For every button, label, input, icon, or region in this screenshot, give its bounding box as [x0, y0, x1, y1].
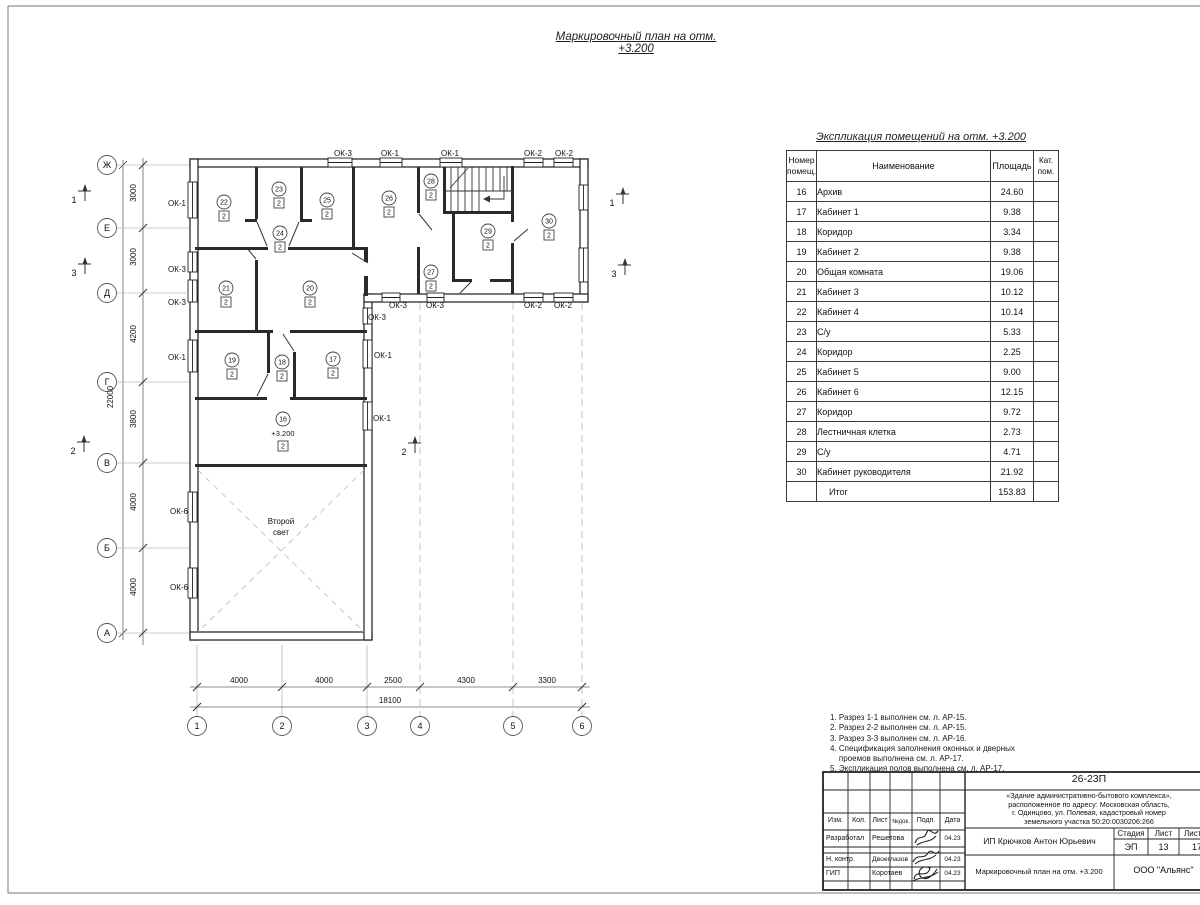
date-control: 04.23: [940, 856, 965, 865]
window-label: ОК-2: [555, 149, 574, 158]
table-row: 27Коридор9.72: [787, 402, 1059, 422]
table-row: 28Лестничная клетка2.73: [787, 422, 1059, 442]
note-line: проемов выполнена см. л. АР-17.: [830, 754, 1015, 764]
table-cell: 153.83: [991, 482, 1034, 502]
svg-text:2: 2: [547, 233, 551, 240]
table-row: 21Кабинет 310.12: [787, 282, 1059, 302]
col-data: Дата: [940, 817, 965, 826]
svg-text:2: 2: [429, 284, 433, 291]
sheets-value: 17: [1180, 843, 1200, 852]
svg-text:2: 2: [281, 444, 285, 451]
table-cell: 24: [787, 342, 817, 362]
room-schedule-table: Номер помещ. Наименование Площадь Кат. п…: [786, 150, 1059, 502]
schedule-title: Экспликация помещений на отм. +3.200: [784, 131, 1058, 143]
svg-text:2: 2: [486, 243, 490, 250]
window-label: ОК-2: [524, 149, 543, 158]
svg-text:2: 2: [224, 300, 228, 307]
svg-text:2: 2: [308, 300, 312, 307]
second-light-label: Второй: [268, 517, 294, 526]
table-cell: 2.73: [991, 422, 1034, 442]
dimension-label: 4000: [129, 493, 138, 511]
room-label: 262: [382, 191, 396, 217]
sheets-label: Листов: [1180, 830, 1200, 839]
stage-value: ЭП: [1114, 843, 1148, 852]
table-row: 18Коридор3.34: [787, 222, 1059, 242]
svg-text:2: 2: [387, 210, 391, 217]
level-mark: +3.200: [271, 429, 294, 438]
note-line: 1. Разрез 1-1 выполнен см. л. АР-15.: [830, 713, 1015, 723]
window-label: ОК-1: [374, 351, 393, 360]
table-cell: 18: [787, 222, 817, 242]
svg-text:2: 2: [279, 721, 284, 731]
section-marker: 2: [70, 435, 90, 456]
svg-text:Б: Б: [104, 543, 110, 553]
table-cell: Итог: [817, 482, 991, 502]
table-cell: [1034, 482, 1059, 502]
svg-text:22: 22: [220, 200, 228, 207]
svg-text:1: 1: [194, 721, 199, 731]
name-developer: Решетова: [872, 835, 912, 844]
svg-text:2: 2: [70, 446, 75, 456]
table-cell: [1034, 362, 1059, 382]
table-row: 17Кабинет 19.38: [787, 202, 1059, 222]
svg-text:29: 29: [484, 229, 492, 236]
dimension-label: 4300: [457, 676, 475, 685]
schedule-header-row: Номер помещ. Наименование Площадь Кат. п…: [787, 151, 1059, 182]
svg-text:19: 19: [228, 358, 236, 365]
table-cell: 27: [787, 402, 817, 422]
note-line: 2. Разрез 2-2 выполнен см. л. АР-15.: [830, 723, 1015, 733]
room-label: 192: [225, 353, 239, 379]
table-cell: 23: [787, 322, 817, 342]
svg-text:26: 26: [385, 196, 393, 203]
col-ndoc: №док.: [890, 818, 912, 827]
svg-text:5: 5: [510, 721, 515, 731]
table-cell: [787, 482, 817, 502]
window-symbols: [188, 158, 588, 598]
table-row: 22Кабинет 410.14: [787, 302, 1059, 322]
dimension-label: 4200: [129, 325, 138, 343]
svg-text:2: 2: [277, 201, 281, 208]
room-label: 16+3.2002: [271, 412, 294, 451]
axis-column-markers: 123456: [188, 683, 592, 736]
svg-text:21: 21: [222, 286, 230, 293]
dimension-labels: 3000300042003800400040004000400025004300…: [106, 184, 556, 705]
table-cell: 19.06: [991, 262, 1034, 282]
dimension-label: 3800: [129, 410, 138, 428]
svg-text:16: 16: [279, 417, 287, 424]
section-marker: 1: [609, 187, 629, 208]
table-cell: [1034, 282, 1059, 302]
table-cell: Коридор: [817, 342, 991, 362]
svg-text:23: 23: [275, 187, 283, 194]
table-cell: Кабинет 4: [817, 302, 991, 322]
room-label: 252: [320, 193, 334, 219]
table-row: 23С/у5.33: [787, 322, 1059, 342]
stage-label: Стадия: [1114, 830, 1148, 839]
table-row: 26Кабинет 612.15: [787, 382, 1059, 402]
plan-title: Маркировочный план на отм. +3.200: [540, 31, 732, 55]
table-row: Итог153.83: [787, 482, 1059, 502]
drawing-name: Маркировочный план на отм. +3.200: [966, 868, 1112, 877]
dimension-label: 3000: [129, 184, 138, 202]
table-cell: 25: [787, 362, 817, 382]
svg-text:2: 2: [280, 374, 284, 381]
grid-lines: [197, 303, 582, 716]
dimension-label: 4000: [129, 578, 138, 596]
svg-text:2: 2: [429, 193, 433, 200]
table-cell: Кабинет руководителя: [817, 462, 991, 482]
table-cell: 10.14: [991, 302, 1034, 322]
table-cell: [1034, 182, 1059, 202]
table-cell: 21: [787, 282, 817, 302]
role-developer: Разработал: [826, 835, 871, 844]
svg-text:3: 3: [611, 269, 616, 279]
table-cell: Кабинет 5: [817, 362, 991, 382]
window-label: ОК-1: [441, 149, 460, 158]
table-cell: 19: [787, 242, 817, 262]
table-cell: 26: [787, 382, 817, 402]
svg-text:30: 30: [545, 219, 553, 226]
room-label: 272: [424, 265, 438, 291]
svg-text:6: 6: [579, 721, 584, 731]
col-header-category: Кат. пом.: [1034, 151, 1059, 182]
table-cell: Архив: [817, 182, 991, 202]
sheet-value: 13: [1148, 843, 1179, 852]
table-cell: 9.38: [991, 202, 1034, 222]
col-header-number: Номер помещ.: [787, 151, 817, 182]
table-row: 24Коридор2.25: [787, 342, 1059, 362]
table-cell: Кабинет 6: [817, 382, 991, 402]
svg-text:2: 2: [278, 245, 282, 252]
window-label: ОК-3: [426, 301, 445, 310]
table-cell: [1034, 382, 1059, 402]
table-cell: 17: [787, 202, 817, 222]
table-cell: [1034, 222, 1059, 242]
table-cell: 21.92: [991, 462, 1034, 482]
company-name: ООО "Альянс": [1114, 866, 1200, 875]
table-cell: 20: [787, 262, 817, 282]
table-cell: 4.71: [991, 442, 1034, 462]
room-label: 302: [542, 214, 556, 240]
table-cell: 9.72: [991, 402, 1034, 422]
room-label: 202: [303, 281, 317, 307]
table-row: 19Кабинет 29.38: [787, 242, 1059, 262]
table-cell: Коридор: [817, 402, 991, 422]
svg-text:А: А: [104, 628, 110, 638]
table-cell: 9.00: [991, 362, 1034, 382]
room-label: 182: [275, 355, 289, 381]
date-gip: 04.23: [940, 870, 965, 879]
svg-text:В: В: [104, 458, 110, 468]
svg-text:2: 2: [331, 371, 335, 378]
date-developer: 04.23: [940, 835, 965, 844]
room-label: 212: [219, 281, 233, 307]
name-gip: Коротаев: [872, 870, 912, 879]
window-label: ОК-1: [168, 199, 187, 208]
drawing-sheet: { "sheet": { "plan_title": "Маркировочны…: [0, 0, 1200, 900]
window-label: ОК-1: [373, 414, 392, 423]
table-row: 25Кабинет 59.00: [787, 362, 1059, 382]
dimension-label: 4000: [315, 676, 333, 685]
room-label: 282: [424, 174, 438, 200]
room-labels: 2222322422522622822923022722122021921821…: [217, 174, 556, 451]
misc-labels: Второйсвет: [268, 517, 294, 537]
svg-text:2: 2: [401, 447, 406, 457]
window-label: ОК-3: [334, 149, 353, 158]
table-cell: 24.60: [991, 182, 1034, 202]
table-cell: 3.34: [991, 222, 1034, 242]
window-label: ОК-2: [524, 301, 543, 310]
second-light-label: свет: [273, 528, 289, 537]
staircase: [446, 167, 511, 211]
note-line: 5. Экспликация полов выполнена см. л. АР…: [830, 764, 1015, 774]
table-cell: Кабинет 3: [817, 282, 991, 302]
table-cell: С/у: [817, 442, 991, 462]
signature-scribbles: [913, 830, 939, 881]
room-label: 232: [272, 182, 286, 208]
svg-text:27: 27: [427, 270, 435, 277]
table-cell: 2.25: [991, 342, 1034, 362]
table-row: 29С/у4.71: [787, 442, 1059, 462]
window-label: ОК-6: [170, 507, 189, 516]
svg-text:2: 2: [230, 372, 234, 379]
table-cell: 16: [787, 182, 817, 202]
table-cell: 28: [787, 422, 817, 442]
role-gip: ГИП: [826, 870, 871, 879]
table-cell: Кабинет 1: [817, 202, 991, 222]
svg-text:1: 1: [609, 198, 614, 208]
table-cell: [1034, 442, 1059, 462]
dimension-label: 4000: [230, 676, 248, 685]
svg-text:2: 2: [222, 214, 226, 221]
window-label: ОК-6: [170, 583, 189, 592]
table-cell: [1034, 302, 1059, 322]
room-label: 172: [326, 352, 340, 378]
table-cell: Кабинет 2: [817, 242, 991, 262]
table-cell: [1034, 202, 1059, 222]
room-label: 292: [481, 224, 495, 250]
section-marker: 1: [71, 184, 91, 205]
section-marker: 3: [71, 257, 91, 278]
svg-text:Д: Д: [104, 288, 110, 298]
doc-code: 26-23П: [965, 775, 1200, 784]
svg-text:Г: Г: [105, 377, 110, 387]
col-header-area: Площадь: [991, 151, 1034, 182]
table-cell: 29: [787, 442, 817, 462]
svg-text:28: 28: [427, 179, 435, 186]
table-cell: [1034, 262, 1059, 282]
table-cell: [1034, 462, 1059, 482]
dimension-label: 3300: [538, 676, 556, 685]
col-list: Лист: [870, 817, 890, 826]
table-cell: 10.12: [991, 282, 1034, 302]
svg-text:18: 18: [278, 360, 286, 367]
table-cell: [1034, 422, 1059, 442]
svg-text:4: 4: [417, 721, 422, 731]
table-cell: [1034, 342, 1059, 362]
table-row: 20Общая комната19.06: [787, 262, 1059, 282]
col-kol: Кол.: [848, 817, 870, 826]
dimension-label: 2500: [384, 676, 402, 685]
project-description: «Здание административно-бытового комплек…: [967, 792, 1200, 826]
role-control: Н. контр.: [826, 856, 871, 865]
table-cell: Общая комната: [817, 262, 991, 282]
section-marker: 3: [611, 258, 631, 279]
second-light-cross: [198, 470, 364, 632]
total-width-dimension: 18100: [379, 696, 402, 705]
section-marker: 2: [401, 436, 421, 457]
room-label: 222: [217, 195, 231, 221]
table-row: 30Кабинет руководителя21.92: [787, 462, 1059, 482]
window-label: ОК-3: [368, 313, 387, 322]
table-cell: 9.38: [991, 242, 1034, 262]
name-control: Двоеглазов: [872, 856, 914, 865]
note-line: 3. Разрез 3-3 выполнен см. л. АР-16.: [830, 734, 1015, 744]
client-name: ИП Крючков Антон Юрьевич: [965, 837, 1114, 846]
table-cell: [1034, 242, 1059, 262]
table-cell: 22: [787, 302, 817, 322]
window-label: ОК-3: [168, 265, 187, 274]
dimension-label: 3000: [129, 248, 138, 266]
svg-text:1: 1: [71, 195, 76, 205]
table-cell: 30: [787, 462, 817, 482]
svg-text:2: 2: [325, 212, 329, 219]
table-cell: [1034, 402, 1059, 422]
svg-text:20: 20: [306, 286, 314, 293]
window-label: ОК-1: [381, 149, 400, 158]
window-label: ОК-1: [168, 353, 187, 362]
col-header-name: Наименование: [817, 151, 991, 182]
interior-walls: [195, 166, 514, 467]
svg-text:3: 3: [71, 268, 76, 278]
svg-text:24: 24: [276, 231, 284, 238]
table-row: 16Архив24.60: [787, 182, 1059, 202]
svg-text:Е: Е: [104, 223, 110, 233]
sheet-label: Лист: [1148, 830, 1179, 839]
room-label: 242: [273, 226, 287, 252]
col-izm: Изм.: [823, 817, 848, 826]
window-label: ОК-3: [168, 298, 187, 307]
table-cell: С/у: [817, 322, 991, 342]
svg-text:17: 17: [329, 357, 337, 364]
col-podp: Подп.: [912, 817, 940, 826]
svg-text:Ж: Ж: [103, 160, 112, 170]
notes-block: 1. Разрез 1-1 выполнен см. л. АР-15.2. Р…: [830, 713, 1015, 775]
table-cell: 5.33: [991, 322, 1034, 342]
window-label: ОК-3: [389, 301, 408, 310]
table-cell: 12.15: [991, 382, 1034, 402]
svg-text:25: 25: [323, 198, 331, 205]
total-height-dimension: 22000: [106, 385, 115, 408]
table-cell: [1034, 322, 1059, 342]
window-label: ОК-2: [554, 301, 573, 310]
table-cell: Коридор: [817, 222, 991, 242]
note-line: 4. Спецификация заполнения оконных и две…: [830, 744, 1015, 754]
svg-text:3: 3: [364, 721, 369, 731]
table-cell: Лестничная клетка: [817, 422, 991, 442]
